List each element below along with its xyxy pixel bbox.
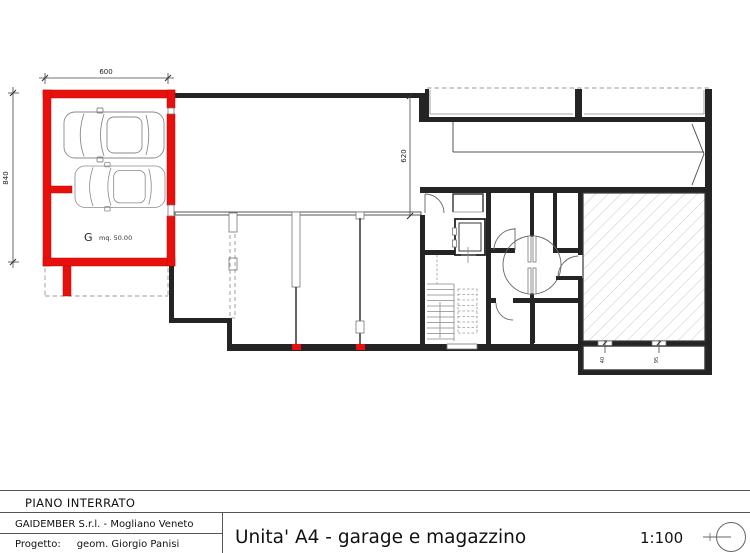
svg-text:40: 40 xyxy=(600,357,606,363)
car-1 xyxy=(64,108,164,162)
project-label: Progetto: xyxy=(15,539,61,550)
svg-text:600: 600 xyxy=(99,68,112,76)
elevator xyxy=(453,194,486,263)
dimension-840: 840 xyxy=(2,87,19,268)
garage-area-label: mq. 50.00 xyxy=(99,234,132,242)
title-block-divider xyxy=(0,490,750,491)
garage-label: G mq. 50.00 xyxy=(84,231,132,244)
dimension-620: 620 xyxy=(400,93,413,219)
car-2 xyxy=(75,162,165,211)
project-author: geom. Giorgio Panisi xyxy=(77,539,180,550)
drawing-title: Unita' A4 - garage e magazzino xyxy=(235,527,526,548)
svg-text:840: 840 xyxy=(2,171,10,184)
ramp-and-light-wells xyxy=(430,90,704,185)
svg-text:95: 95 xyxy=(654,357,660,363)
floor-plan-svg: G mq. 50.00 600 840 620 40 95 xyxy=(0,0,750,553)
company-name: GAIDEMBER S.r.l. - Mogliano Veneto xyxy=(15,519,193,530)
project-row: Progetto:geom. Giorgio Panisi xyxy=(15,539,179,550)
svg-text:620: 620 xyxy=(400,149,408,162)
title-block-divider xyxy=(0,512,750,513)
garage-unit-a4 xyxy=(43,90,175,296)
garage-letter: G xyxy=(84,231,93,244)
compass-circle-icon xyxy=(703,523,746,552)
title-block-divider xyxy=(222,512,223,553)
floor-name: PIANO INTERRATO xyxy=(25,496,135,510)
stairs xyxy=(427,255,477,341)
garage-partitions xyxy=(175,212,477,350)
dimension-600: 600 xyxy=(39,68,174,84)
drawing-scale: 1:100 xyxy=(640,529,683,547)
title-block-divider xyxy=(0,533,222,534)
drawing-sheet: G mq. 50.00 600 840 620 40 95 xyxy=(0,0,750,553)
